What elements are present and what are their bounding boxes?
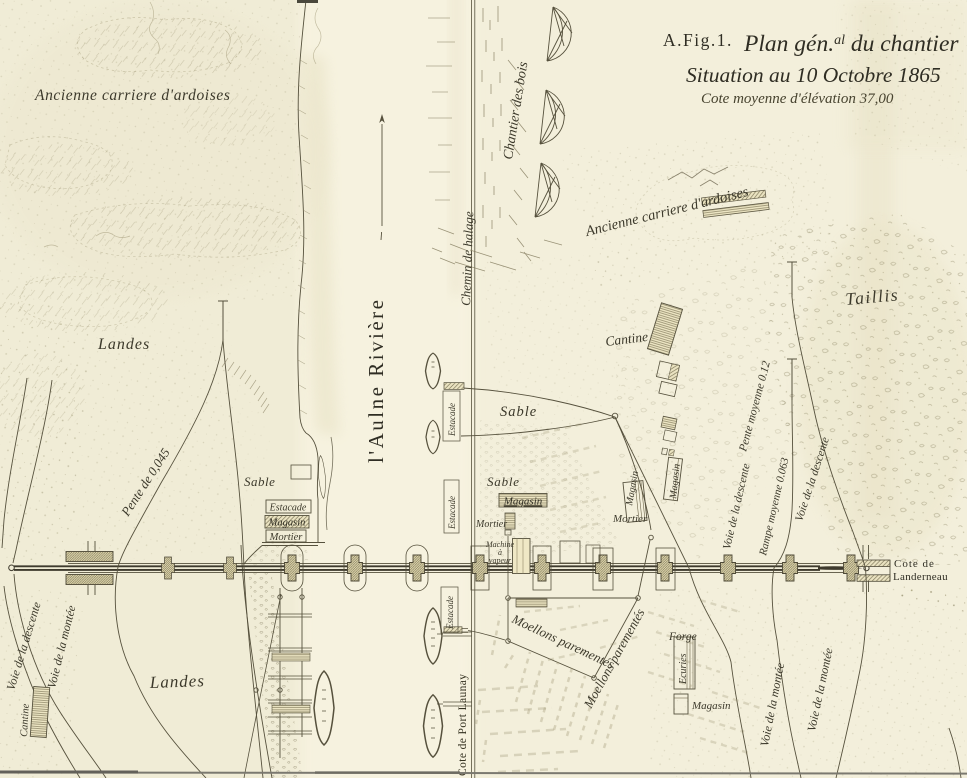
svg-text:Mortier: Mortier <box>475 519 507 530</box>
svg-text:Estacade: Estacade <box>269 503 307 514</box>
svg-text:Magasin: Magasin <box>503 496 543 508</box>
svg-text:Landes: Landes <box>148 671 205 692</box>
svg-text:Forge: Forge <box>668 631 697 643</box>
svg-text:Ecuries: Ecuries <box>678 653 689 685</box>
svg-text:Cantine: Cantine <box>19 703 32 737</box>
svg-text:Cote moyenne d'élévation 37,00: Cote moyenne d'élévation 37,00 <box>701 91 894 107</box>
svg-text:Mortier: Mortier <box>612 513 648 525</box>
svg-text:A.Fig.1.: A.Fig.1. <box>663 30 733 50</box>
svg-text:Cote de: Cote de <box>894 558 935 570</box>
svg-text:Magasin: Magasin <box>691 700 731 712</box>
svg-text:vapeur: vapeur <box>489 556 512 565</box>
svg-text:Estacade: Estacade <box>447 496 457 530</box>
svg-text:Plan gén.al du chantier: Plan gén.al du chantier <box>743 31 959 57</box>
svg-text:Estacade: Estacade <box>445 596 455 630</box>
svg-text:Magasin: Magasin <box>268 518 306 529</box>
svg-text:Landerneau: Landerneau <box>893 571 948 583</box>
svg-text:Estacade: Estacade <box>447 403 457 437</box>
svg-text:Sable: Sable <box>244 474 275 489</box>
svg-text:Sable: Sable <box>487 474 520 489</box>
svg-text:Ancienne carriere d'ardoises: Ancienne carriere d'ardoises <box>34 87 230 104</box>
svg-text:Landes: Landes <box>97 336 150 353</box>
svg-text:Cote de Port Launay: Cote de Port Launay <box>457 674 469 776</box>
svg-text:l'Aulne Rivière: l'Aulne Rivière <box>364 298 388 464</box>
svg-text:Situation au 10 Octobre 1865: Situation au 10 Octobre 1865 <box>686 63 941 87</box>
svg-text:Sable: Sable <box>500 404 537 420</box>
svg-text:Mortier: Mortier <box>269 532 304 543</box>
